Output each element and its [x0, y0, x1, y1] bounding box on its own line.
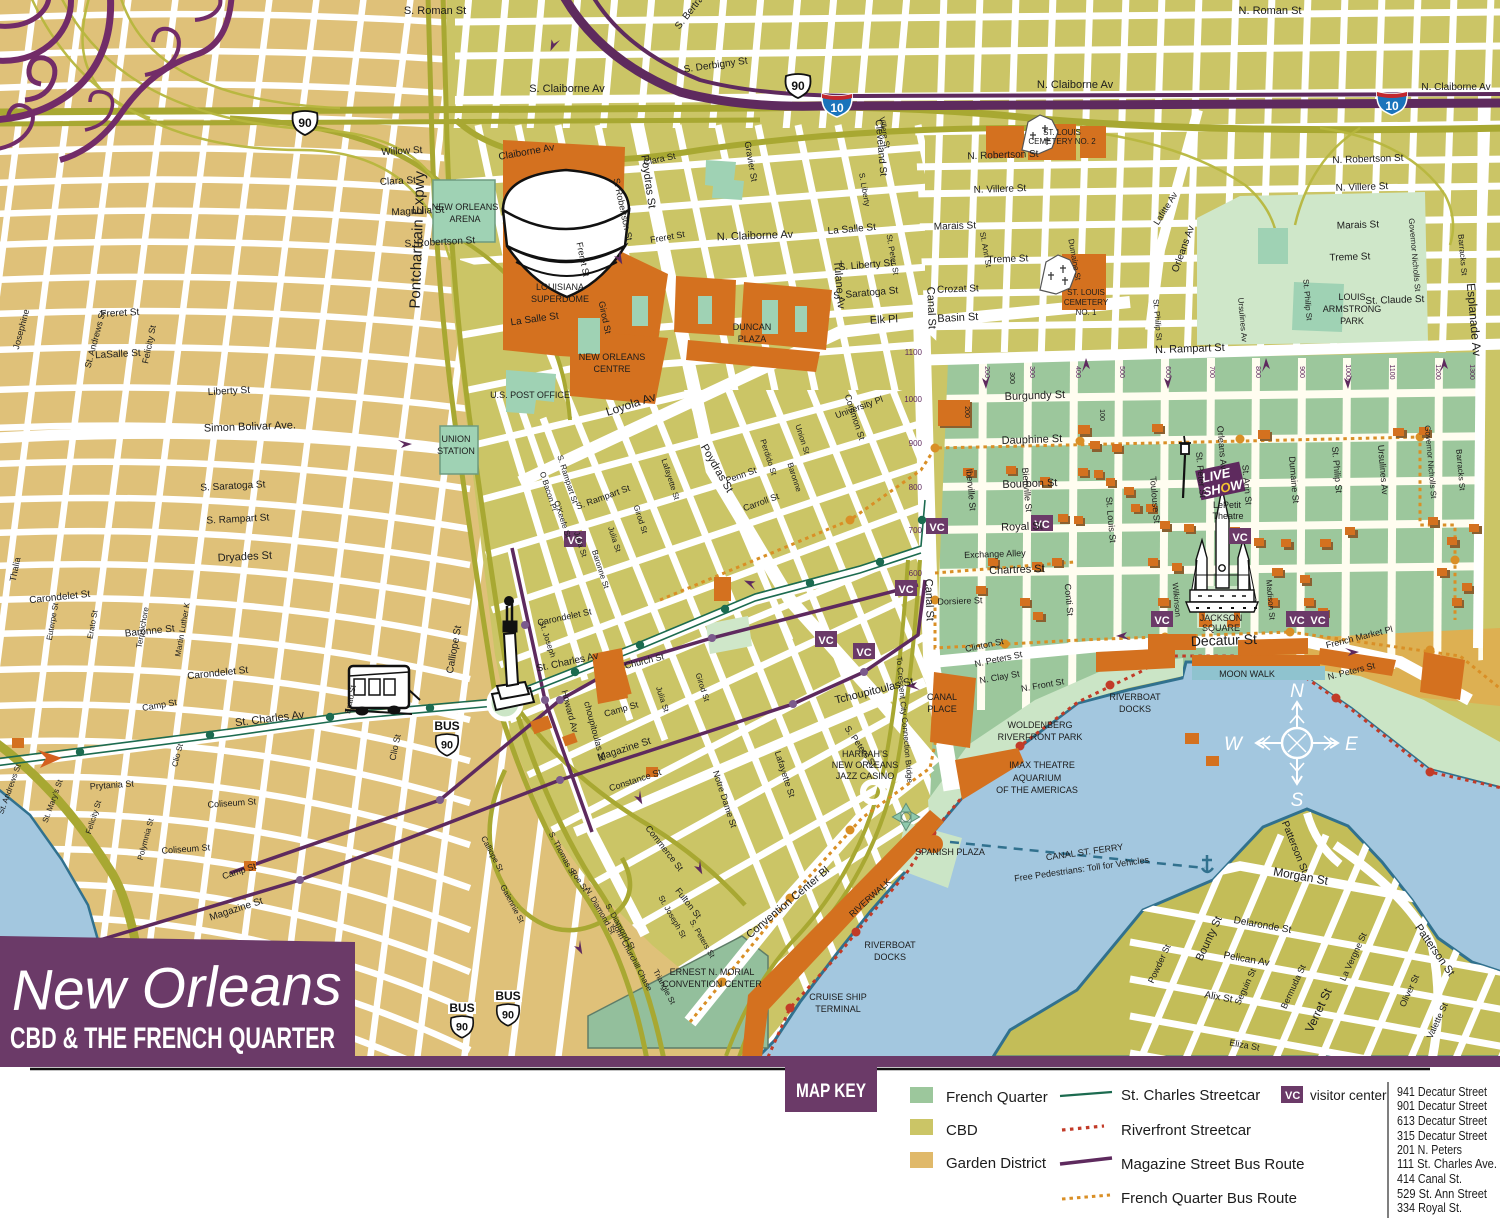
svg-text:Canal St: Canal St — [922, 579, 935, 622]
svg-text:S. Claiborne Av: S. Claiborne Av — [529, 83, 605, 95]
svg-text:New Orleans: New Orleans — [11, 953, 342, 1023]
svg-text:RIVERBOAT: RIVERBOAT — [864, 940, 916, 950]
svg-text:S: S — [1291, 790, 1304, 811]
svg-text:529 St. Ann Street: 529 St. Ann Street — [1397, 1186, 1487, 1201]
svg-text:ST. LOUIS: ST. LOUIS — [1043, 128, 1081, 137]
svg-text:Dorsiere St: Dorsiere St — [937, 595, 983, 607]
svg-text:W: W — [1224, 734, 1244, 755]
svg-text:S. Roman St: S. Roman St — [404, 5, 466, 17]
svg-text:VC: VC — [898, 584, 913, 596]
svg-text:CENTRE: CENTRE — [593, 364, 630, 374]
svg-text:BUS: BUS — [495, 989, 520, 1003]
svg-text:200: 200 — [983, 366, 990, 378]
svg-text:Decatur St: Decatur St — [1190, 631, 1257, 649]
svg-text:IMAX THEATRE: IMAX THEATRE — [1009, 760, 1075, 770]
svg-text:TERMINAL: TERMINAL — [815, 1004, 861, 1014]
svg-text:1000: 1000 — [1344, 364, 1351, 380]
svg-text:Liberty St: Liberty St — [207, 385, 250, 398]
svg-text:VC: VC — [1310, 615, 1325, 627]
svg-text:201 N. Peters: 201 N. Peters — [1397, 1142, 1462, 1157]
svg-text:1000: 1000 — [904, 395, 922, 404]
svg-text:MOON WALK: MOON WALK — [1219, 669, 1275, 679]
svg-text:DUNCAN: DUNCAN — [733, 322, 772, 332]
svg-text:Dauphine St: Dauphine St — [1001, 433, 1062, 447]
svg-text:315 Decatur Street: 315 Decatur Street — [1397, 1128, 1487, 1143]
svg-text:800: 800 — [909, 483, 923, 492]
svg-text:900: 900 — [909, 439, 923, 448]
svg-text:ST. LOUIS: ST. LOUIS — [1067, 288, 1105, 297]
svg-text:N: N — [1290, 681, 1304, 702]
svg-text:CRUISE SHIP: CRUISE SHIP — [809, 992, 867, 1002]
svg-text:Marais St: Marais St — [934, 220, 977, 232]
svg-text:MAP KEY: MAP KEY — [796, 1081, 866, 1102]
svg-text:JAZZ CASINO: JAZZ CASINO — [836, 771, 895, 781]
svg-text:SQUARE: SQUARE — [1202, 623, 1240, 633]
svg-text:Chartres St: Chartres St — [989, 563, 1045, 577]
svg-text:E: E — [1345, 734, 1358, 755]
svg-text:1200: 1200 — [1434, 364, 1441, 380]
svg-text:BUS: BUS — [449, 1001, 474, 1015]
svg-text:visitor center: visitor center — [1310, 1088, 1387, 1103]
svg-text:St. Charles Streetcar: St. Charles Streetcar — [1121, 1087, 1260, 1104]
svg-text:VC: VC — [1285, 1090, 1300, 1102]
svg-text:VC: VC — [1289, 615, 1304, 627]
svg-text:N. Villere St: N. Villere St — [1335, 181, 1388, 194]
svg-text:400: 400 — [1074, 366, 1081, 378]
svg-text:N. Claiborne Av: N. Claiborne Av — [1037, 79, 1114, 91]
svg-text:700: 700 — [909, 526, 923, 535]
svg-text:ARMSTRONG: ARMSTRONG — [1323, 304, 1382, 314]
svg-text:JACKSON: JACKSON — [1200, 613, 1243, 623]
svg-text:French Quarter Bus Route: French Quarter Bus Route — [1121, 1190, 1297, 1207]
svg-text:90: 90 — [298, 116, 312, 130]
svg-text:414 Canal St.: 414 Canal St. — [1397, 1171, 1462, 1186]
svg-text:CONVENTION CENTER: CONVENTION CENTER — [662, 979, 762, 989]
svg-text:N. Rampart St: N. Rampart St — [1155, 342, 1225, 356]
svg-text:DOCKS: DOCKS — [1119, 704, 1151, 714]
svg-text:VC: VC — [1154, 615, 1169, 627]
svg-text:1100: 1100 — [905, 348, 923, 357]
svg-text:CANAL: CANAL — [927, 692, 957, 702]
svg-text:1100: 1100 — [1388, 364, 1395, 379]
svg-text:Riverfront Streetcar: Riverfront Streetcar — [1121, 1122, 1251, 1139]
svg-text:French Quarter: French Quarter — [946, 1089, 1048, 1106]
svg-text:UNION: UNION — [442, 434, 471, 444]
svg-text:Basin St: Basin St — [937, 311, 979, 325]
svg-text:OF THE AMERICAS: OF THE AMERICAS — [996, 785, 1078, 795]
svg-text:DOCKS: DOCKS — [874, 952, 906, 962]
svg-text:PLAZA: PLAZA — [738, 334, 767, 344]
svg-text:111 St. Charles Ave.: 111 St. Charles Ave. — [1397, 1156, 1497, 1171]
svg-text:WOLDENBERG: WOLDENBERG — [1007, 720, 1072, 730]
svg-text:LOUISIANA: LOUISIANA — [536, 282, 584, 292]
svg-text:VC: VC — [1232, 532, 1247, 544]
svg-text:Elk Pl: Elk Pl — [869, 313, 898, 326]
svg-text:RIVERFRONT PARK: RIVERFRONT PARK — [998, 732, 1083, 742]
svg-text:RIVERBOAT: RIVERBOAT — [1109, 692, 1161, 702]
svg-text:NO. 1: NO. 1 — [1076, 308, 1097, 317]
svg-text:Crozat St: Crozat St — [937, 283, 979, 295]
svg-text:VC: VC — [929, 522, 944, 534]
svg-text:1300: 1300 — [1468, 364, 1475, 380]
svg-text:AQUARIUM: AQUARIUM — [1013, 773, 1062, 783]
svg-text:300: 300 — [1028, 366, 1035, 378]
svg-text:SPANISH PLAZA: SPANISH PLAZA — [915, 847, 985, 857]
svg-text:10: 10 — [830, 101, 844, 115]
svg-text:LePetit: LePetit — [1213, 500, 1242, 510]
svg-text:N. Villere St: N. Villere St — [973, 183, 1026, 196]
svg-text:200: 200 — [963, 406, 970, 418]
svg-text:334 Royal St.: 334 Royal St. — [1397, 1200, 1462, 1215]
svg-text:800: 800 — [1254, 366, 1261, 378]
svg-text:941 Decatur Street: 941 Decatur Street — [1397, 1084, 1487, 1099]
svg-text:N. Roman St: N. Roman St — [1239, 5, 1302, 17]
svg-text:Treme St: Treme St — [1329, 251, 1370, 263]
svg-text:CEMETERY NO. 2: CEMETERY NO. 2 — [1028, 137, 1096, 146]
svg-text:300: 300 — [1008, 372, 1015, 384]
svg-text:Willow St: Willow St — [381, 145, 423, 158]
svg-text:Treme St: Treme St — [987, 253, 1028, 265]
svg-text:U.S. POST OFFICE: U.S. POST OFFICE — [490, 390, 570, 400]
svg-text:HARRAH’S: HARRAH’S — [842, 749, 888, 759]
svg-text:PARK: PARK — [1340, 316, 1364, 326]
svg-text:CBD & THE FRENCH QUARTER: CBD & THE FRENCH QUARTER — [10, 1022, 335, 1055]
svg-text:VC: VC — [856, 647, 871, 659]
svg-text:Burgundy St: Burgundy St — [1004, 389, 1065, 403]
svg-text:100: 100 — [1098, 409, 1105, 421]
svg-text:VC: VC — [818, 635, 833, 647]
svg-text:Magazine Street Bus Route: Magazine Street Bus Route — [1121, 1156, 1304, 1173]
svg-text:700: 700 — [1208, 366, 1215, 378]
svg-text:90: 90 — [441, 740, 453, 752]
svg-text:LOUIS: LOUIS — [1338, 292, 1365, 302]
svg-text:Royal St: Royal St — [1001, 520, 1043, 533]
svg-text:STATION: STATION — [437, 446, 475, 456]
svg-text:CEMETERY: CEMETERY — [1064, 298, 1109, 307]
svg-text:ARENA: ARENA — [449, 214, 480, 224]
svg-text:900: 900 — [1298, 366, 1305, 378]
svg-text:ERNEST N. MORIAL: ERNEST N. MORIAL — [670, 967, 755, 977]
svg-text:Theatre: Theatre — [1212, 511, 1243, 521]
svg-text:N. Claiborne Av: N. Claiborne Av — [1421, 82, 1490, 93]
svg-text:613 Decatur Street: 613 Decatur Street — [1397, 1113, 1487, 1128]
svg-text:NEW ORLEANS: NEW ORLEANS — [579, 352, 646, 362]
svg-text:Marais St: Marais St — [1337, 219, 1380, 231]
svg-text:90: 90 — [791, 79, 805, 93]
svg-text:Canal St: Canal St — [924, 287, 937, 330]
svg-text:SUPERDOME: SUPERDOME — [531, 294, 589, 304]
svg-text:600: 600 — [909, 569, 923, 578]
svg-text:NEW ORLEANS: NEW ORLEANS — [832, 760, 899, 770]
svg-text:BUS: BUS — [434, 719, 459, 733]
svg-text:90: 90 — [456, 1022, 468, 1034]
svg-text:NEW ORLEANS: NEW ORLEANS — [432, 202, 499, 212]
svg-text:PLACE: PLACE — [927, 704, 957, 714]
svg-text:10: 10 — [1385, 99, 1399, 113]
svg-text:600: 600 — [1164, 366, 1171, 378]
svg-text:90: 90 — [502, 1010, 514, 1022]
svg-text:Garden District: Garden District — [946, 1155, 1047, 1172]
svg-text:500: 500 — [1118, 366, 1125, 378]
svg-text:901 Decatur Street: 901 Decatur Street — [1397, 1098, 1487, 1113]
svg-text:CBD: CBD — [946, 1122, 978, 1139]
